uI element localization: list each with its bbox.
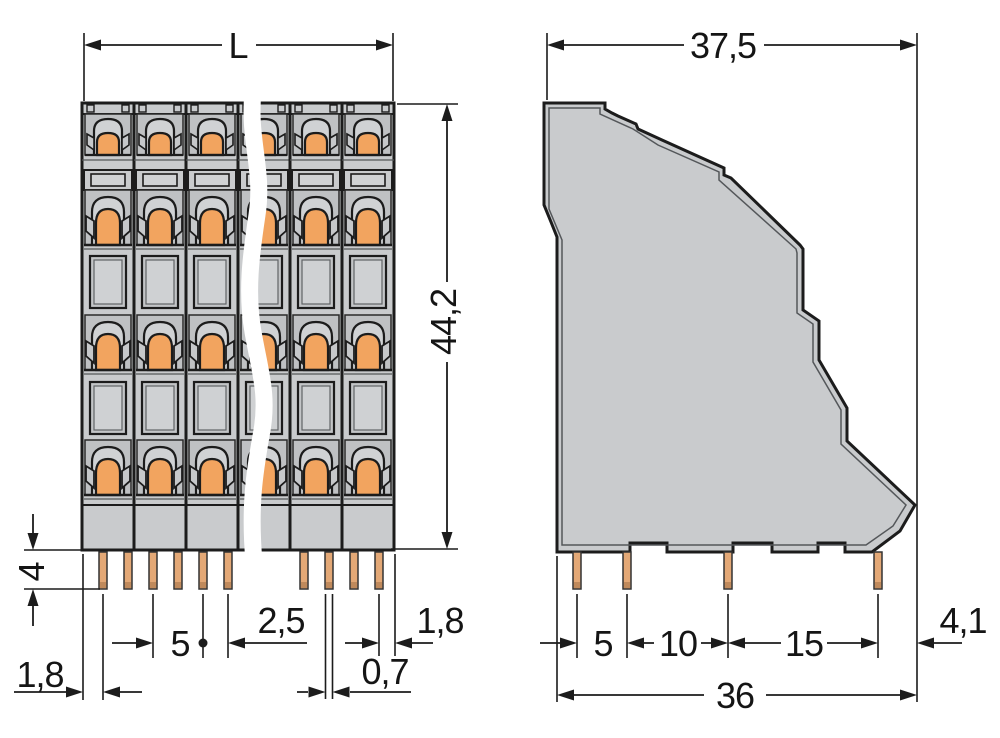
terminal-column: [342, 103, 394, 550]
dim-label-edge-offset: 4,1: [939, 600, 986, 641]
side-profile: [544, 103, 915, 552]
dim-label-pin-length: 4: [11, 562, 52, 581]
dim-label-height: 44,2: [423, 289, 464, 355]
dim-label-base-depth: 36: [716, 675, 754, 716]
front-view: [82, 92, 394, 589]
dim-label-row-offset: 2,5: [257, 600, 304, 641]
terminal-block-dimension-drawing: L 44,2 4 1,8 5 2,5 0,7: [0, 0, 1000, 738]
technical-drawing-page: L 44,2 4 1,8 5 2,5 0,7: [0, 0, 1000, 738]
side-view: [544, 103, 915, 589]
dim-label-span2: 10: [659, 623, 697, 664]
front-solder-pins: [99, 552, 383, 589]
dim-label-pin-width: 0,7: [361, 651, 408, 692]
terminal-column: [290, 103, 342, 550]
dim-label-span3: 15: [785, 623, 823, 664]
terminal-column: [82, 103, 134, 550]
terminal-column: [134, 103, 186, 550]
dim-label-span1: 5: [593, 623, 612, 664]
side-solder-pins: [573, 552, 882, 589]
front-housing: [82, 103, 394, 550]
dim-label-pitch: 5: [170, 623, 189, 664]
terminal-column: [186, 103, 238, 550]
dim-label-depth: 37,5: [690, 25, 756, 66]
dim-label-pin-to-edge: 1,8: [416, 600, 463, 641]
dim-label-edge-to-pin: 1,8: [16, 654, 63, 695]
dim-label-length: L: [228, 25, 247, 66]
